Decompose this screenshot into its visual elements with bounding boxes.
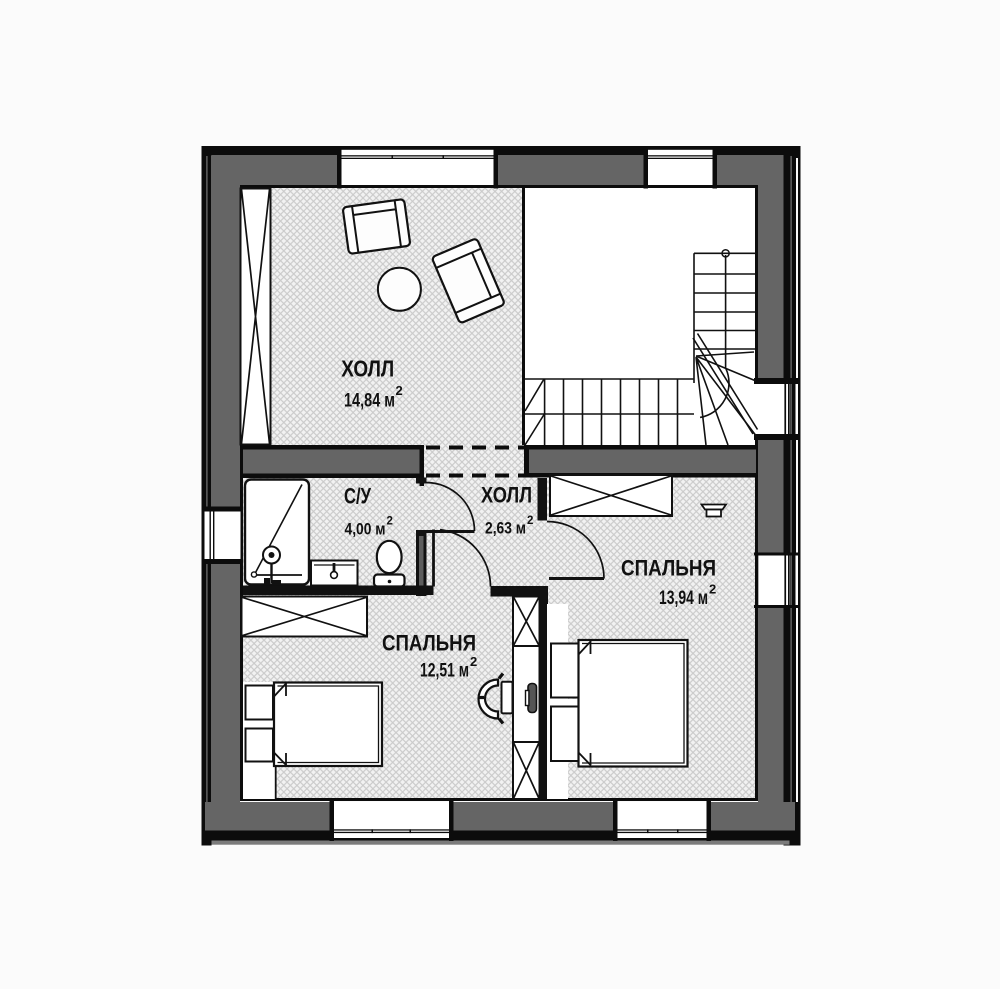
svg-text:2: 2 bbox=[470, 654, 477, 669]
svg-text:12,51 м: 12,51 м bbox=[420, 661, 469, 682]
svg-text:13,94 м: 13,94 м bbox=[659, 588, 708, 609]
svg-text:2,63 м: 2,63 м bbox=[485, 520, 526, 538]
svg-text:14,84 м: 14,84 м bbox=[344, 391, 395, 412]
svg-text:С/У: С/У bbox=[344, 484, 371, 509]
svg-text:2: 2 bbox=[527, 515, 533, 527]
svg-text:СПАЛЬНЯ: СПАЛЬНЯ bbox=[382, 631, 476, 656]
svg-text:2: 2 bbox=[396, 383, 403, 398]
svg-text:2: 2 bbox=[709, 582, 716, 597]
svg-text:СПАЛЬНЯ: СПАЛЬНЯ bbox=[621, 556, 716, 581]
svg-text:2: 2 bbox=[387, 516, 393, 528]
svg-text:4,00 м: 4,00 м bbox=[345, 520, 386, 538]
svg-text:ХОЛЛ: ХОЛЛ bbox=[481, 483, 532, 508]
svg-text:ХОЛЛ: ХОЛЛ bbox=[341, 356, 394, 382]
